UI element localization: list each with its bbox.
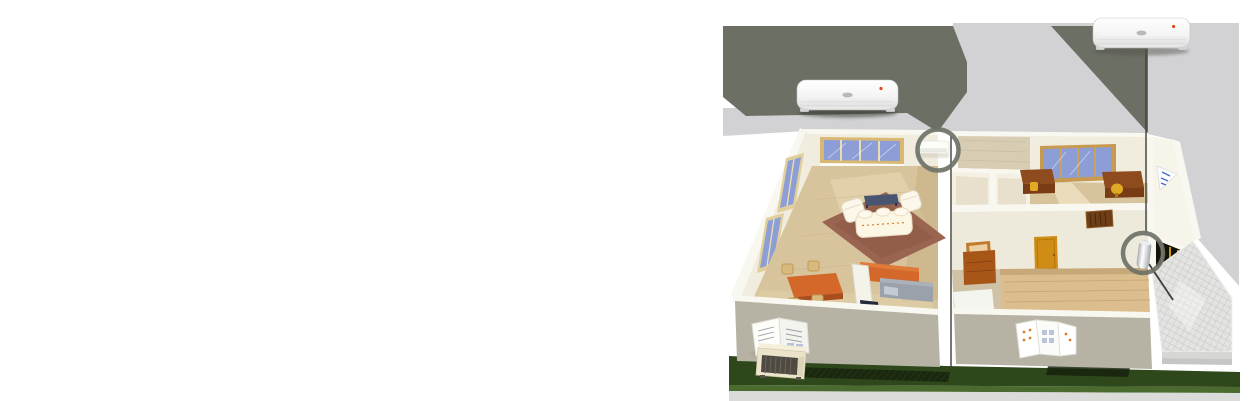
enlarged-indoor-unit-right: [1093, 18, 1190, 50]
unit-foot: [1096, 47, 1105, 50]
indicator-led: [879, 87, 882, 90]
hero-banner: [0, 0, 1256, 401]
dining-chair: [808, 261, 819, 271]
back-wall-top: [803, 129, 938, 135]
office-desk-left: [1020, 169, 1055, 194]
sofa: [855, 206, 913, 238]
brand-logo: [1136, 31, 1146, 36]
bay-display: [1016, 320, 1076, 358]
brand-logo: [842, 93, 852, 98]
left-building: [731, 128, 946, 380]
outdoor-condenser-unit: [756, 343, 807, 380]
house-illustration: [729, 128, 1240, 401]
unit-foot: [800, 109, 809, 112]
unit-foot: [1178, 47, 1187, 50]
wall-grate: [1086, 210, 1113, 228]
office-desk-right: [1102, 171, 1144, 198]
dining-chair: [782, 264, 793, 274]
office-stool-yellow: [1030, 182, 1038, 191]
dining-table: [787, 273, 843, 297]
indicator-led: [1172, 25, 1175, 28]
hero-illustration: [0, 0, 1256, 401]
living-room-back-window: [820, 137, 904, 167]
hall-door: [1034, 236, 1058, 272]
enlarged-indoor-unit-left: [797, 80, 898, 112]
office-chair-yellow: [1111, 184, 1123, 195]
unit-foot: [886, 109, 895, 112]
small-indoor-unit-on-wall: [917, 141, 949, 157]
